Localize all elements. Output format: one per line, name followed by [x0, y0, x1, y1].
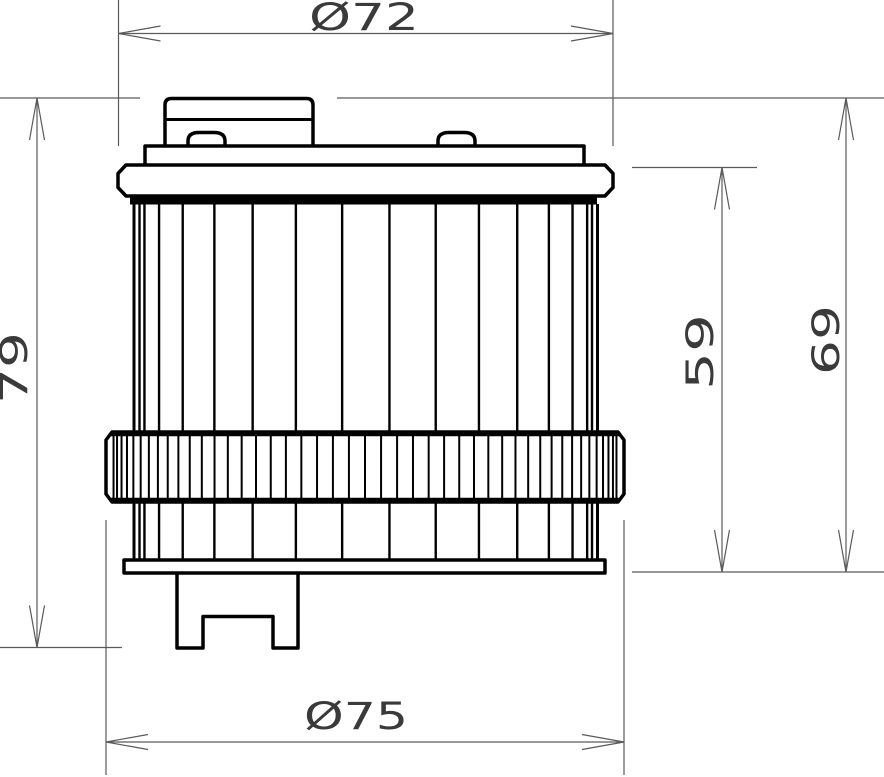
element-top-seal [130, 195, 597, 205]
arrowhead-line [30, 98, 38, 140]
arrowhead-line [722, 530, 730, 572]
gasket-nub-right [438, 133, 475, 147]
top-flange [118, 165, 613, 196]
bottom-plate [124, 560, 605, 573]
dim-label-overall-height: 79 [0, 332, 36, 404]
arrowhead-line [722, 168, 730, 210]
bottom-boss [177, 573, 298, 648]
arrowhead-line [106, 735, 148, 743]
arrowhead-line [846, 530, 854, 572]
dim-label-top-diameter: Ø72 [309, 0, 419, 39]
dim-label-plate-height: 69 [805, 305, 848, 375]
arrowhead-line [839, 98, 847, 140]
arrowhead-line [119, 26, 161, 34]
arrowhead-line [846, 98, 854, 140]
arrowhead-line [37, 98, 45, 140]
oil-filter-part [106, 99, 624, 649]
arrowhead-line [571, 26, 613, 34]
dim-label-ring-diameter: Ø75 [304, 695, 408, 738]
pleated-body-upper [144, 204, 587, 432]
drawing-canvas: Ø72 79 59 69 Ø75 [0, 0, 884, 777]
knurl-lines [114, 435, 617, 500]
arrowhead-line [106, 742, 148, 750]
arrowhead-line [571, 34, 613, 42]
arrowhead-line [37, 606, 45, 648]
arrowhead-line [582, 742, 624, 750]
dim-label-element-height: 59 [679, 314, 722, 390]
arrowhead-line [582, 735, 624, 743]
arrowhead-line [30, 606, 38, 648]
gasket-nub-left [188, 133, 225, 147]
arrowhead-line [715, 168, 723, 210]
arrowhead-line [119, 34, 161, 42]
arrowhead-line [715, 530, 723, 572]
arrowhead-line [839, 530, 847, 572]
pleated-body-lower [144, 502, 587, 560]
technical-drawing: Ø72 79 59 69 Ø75 [0, 0, 884, 777]
